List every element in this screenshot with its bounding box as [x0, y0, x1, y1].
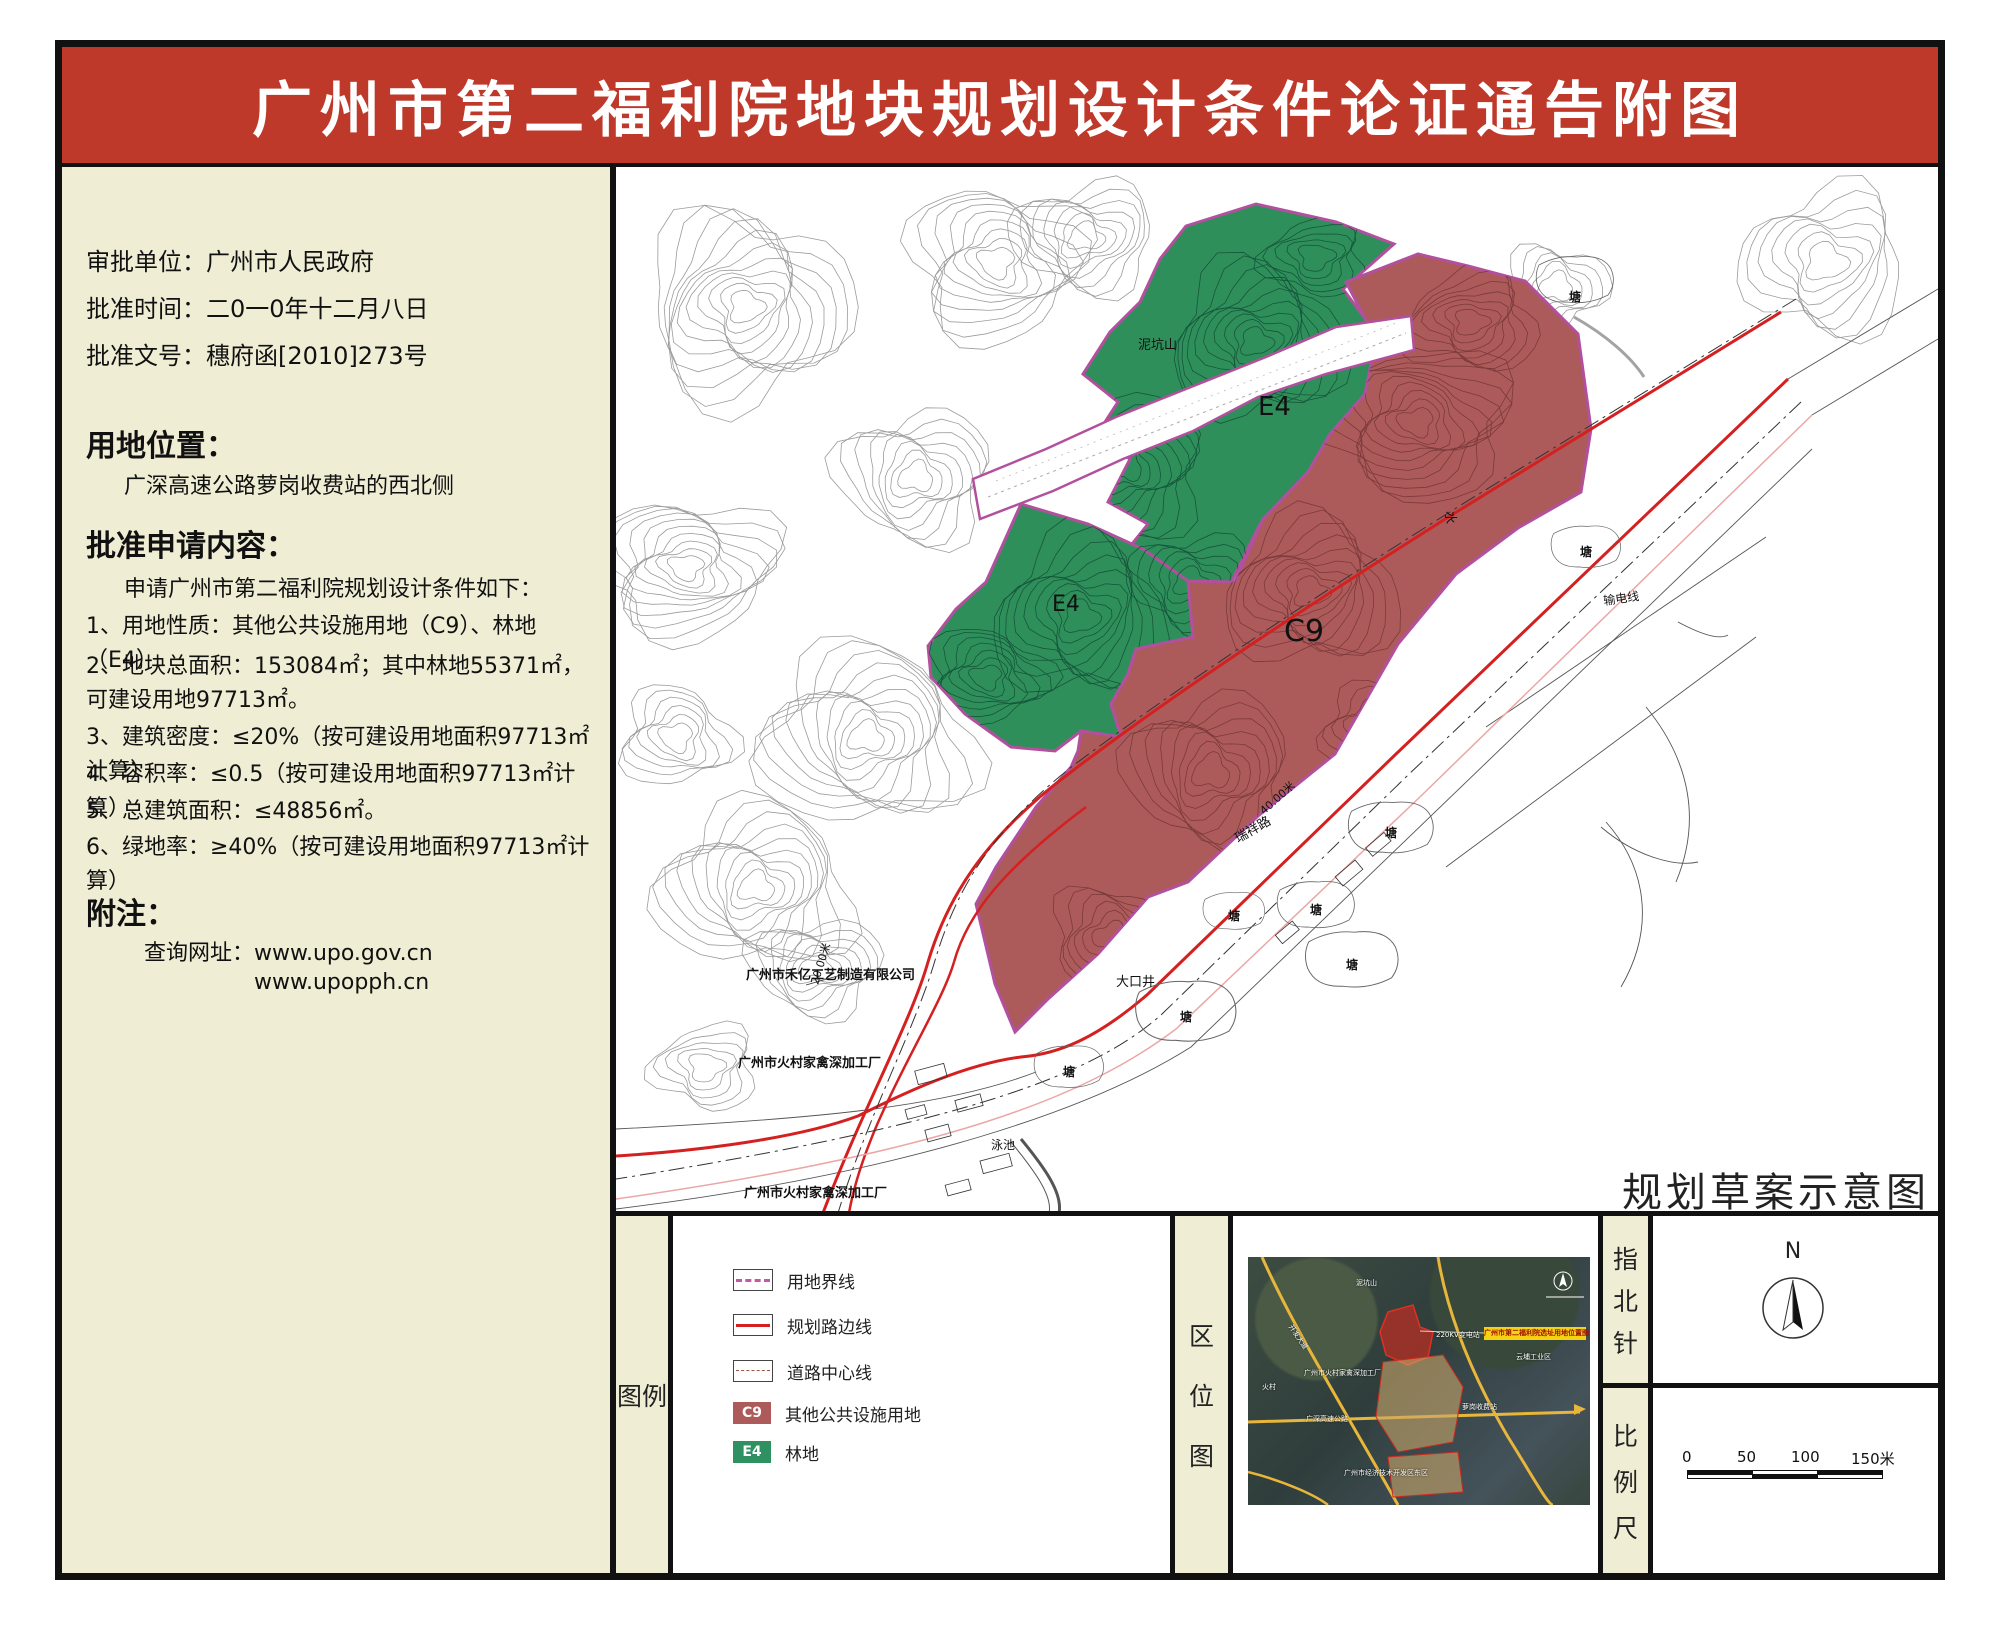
legend-title-text: 图例	[617, 1377, 667, 1413]
e4-swatch: E4	[733, 1441, 771, 1463]
contour-line	[827, 695, 915, 781]
inset-compass-needle	[1559, 1273, 1567, 1287]
scale-bar-cell: 0 50 100 150米	[1653, 1388, 1938, 1573]
legend-title: 图例	[616, 1216, 668, 1573]
boundary-line-swatch	[733, 1269, 773, 1291]
scalebar-title-char: 尺	[1613, 1509, 1638, 1545]
compass-title-char: 指	[1613, 1240, 1638, 1276]
inset-label-highway: 广深高速公路	[1306, 1415, 1348, 1423]
map-label-c9: C9	[1284, 614, 1324, 649]
legend-label: 规划路边线	[787, 1313, 872, 1338]
scalebar-title-char: 例	[1613, 1463, 1638, 1499]
inset-label-factory: 广州市火村家禽深加工厂	[1304, 1369, 1381, 1377]
compass-needle-dark	[1793, 1280, 1803, 1330]
road-edge-swatch	[733, 1314, 773, 1336]
contour-line	[964, 239, 1021, 289]
condition-item: 5、总建筑面积：≤48856㎡。	[86, 795, 591, 829]
notes-heading: 附注：	[86, 898, 591, 932]
legend-item-centerline: 道路中心线	[733, 1359, 872, 1383]
contour-line	[760, 650, 950, 812]
map-label-hill: 泥坑山	[1138, 338, 1177, 353]
inset-label-hill: 泥坑山	[1356, 1279, 1377, 1287]
location-map-title-char: 图	[1189, 1437, 1214, 1473]
compass-title-char: 针	[1613, 1324, 1638, 1360]
map-label-well: 大口井	[1116, 975, 1155, 990]
location-body: 广深高速公路萝岗收费站的西北侧	[124, 470, 629, 504]
scalebar-title-char: 比	[1613, 1417, 1638, 1453]
contour-line	[616, 506, 785, 638]
north-arrow-cell: N	[1653, 1216, 1938, 1383]
contour-line	[918, 194, 1092, 338]
location-map-title-char: 区	[1189, 1317, 1214, 1353]
contour-line	[667, 556, 704, 582]
contour-line	[626, 526, 741, 600]
map-label-e4-lower: E4	[1052, 592, 1080, 617]
legend-label: 道路中心线	[787, 1359, 872, 1384]
map-label-pond: 塘	[1228, 908, 1240, 923]
satellite-overlay	[1248, 1257, 1590, 1505]
info-panel: 审批单位：广州市人民政府 批准时间：二0一0年十二月八日 批准文号：穗府函[20…	[62, 167, 616, 1573]
plan-sheet: 广州市第二福利院地块规划设计条件论证通告附图 审批单位：广州市人民政府 批准时间…	[0, 0, 2000, 1630]
inset-site-area	[1380, 1305, 1433, 1365]
scale-tick: 50	[1737, 1448, 1756, 1466]
contour-line	[731, 860, 785, 909]
contour-line	[935, 211, 1055, 302]
map-label-pond: 塘	[1580, 544, 1592, 559]
map-label-pool: 泳池	[991, 1138, 1015, 1152]
contour-line	[616, 505, 787, 650]
contour-line	[1538, 270, 1573, 301]
inset-buildable-area	[1376, 1355, 1463, 1452]
map-label-water: 水	[1442, 511, 1457, 524]
legend-item-boundary: 用地界线	[733, 1268, 855, 1292]
sheet-title: 广州市第二福利院地块规划设计条件论证通告附图	[252, 62, 1748, 149]
compass-title: 指 北 针	[1603, 1216, 1648, 1383]
contour-line	[721, 283, 778, 333]
legend-item-e4: E4 林地	[733, 1440, 819, 1464]
inset-site-chip: 广州市第二福利院选址用地位置图	[1484, 1327, 1586, 1340]
contour-line	[647, 790, 862, 959]
location-heading: 用地位置：	[86, 430, 591, 464]
contour-line	[686, 258, 793, 363]
inset-label-tollgate: 萝岗收费站	[1462, 1403, 1497, 1411]
map-label-factory-huocun: 广州市火村家禽深加工厂	[738, 1055, 881, 1071]
contour-line	[891, 450, 942, 497]
contour-line	[689, 1054, 727, 1082]
centerline-swatch	[733, 1360, 773, 1382]
contour-line	[656, 549, 712, 588]
legend-item-c9: C9 其他公共设施用地	[733, 1401, 921, 1425]
contour-line	[898, 459, 933, 492]
contour-line	[1007, 176, 1149, 301]
title-banner: 广州市第二福利院地块规划设计条件论证通告附图	[62, 47, 1938, 167]
inset-label-industrial: 云埔工业区	[1516, 1353, 1551, 1361]
scale-tick: 150米	[1851, 1448, 1895, 1469]
contour-line	[840, 710, 895, 759]
compass-needle-light	[1783, 1280, 1793, 1330]
approval-unit: 审批单位：广州市人民政府	[86, 245, 591, 279]
contour-line	[671, 230, 812, 373]
map-caption: 规划草案示意图	[1560, 1160, 1930, 1218]
north-arrow: N	[1653, 1216, 1938, 1383]
contour-line	[885, 441, 952, 508]
condition-item: 6、绿地率：≥40%（按可建设用地面积97713㎡计算）	[86, 831, 591, 899]
master-plan-map: E4 E4 C9 泥坑山 水 输电线 瑞祥路 40.00米 20.00米 大口井…	[616, 167, 1938, 1211]
legend-body: 用地界线 规划路边线 道路中心线 C9 其他公共设施用地 E4 林地	[673, 1216, 1170, 1573]
c9-swatch: C9	[733, 1402, 771, 1424]
location-map-title-char: 位	[1189, 1377, 1214, 1413]
inset-label-devzone: 广州市经济技术开发区东区	[1344, 1469, 1428, 1477]
contour-line	[731, 290, 768, 323]
contour-line	[622, 519, 756, 605]
contour-line	[855, 430, 981, 540]
contour-line	[1355, 712, 1395, 743]
map-label-factory-heyi: 广州市禾亿工艺制造有限公司	[746, 967, 915, 983]
inset-label-village: 火村	[1262, 1383, 1276, 1391]
approval-date: 批准时间：二0一0年十二月八日	[86, 292, 591, 326]
approval-docno: 批准文号：穗府函[2010]273号	[86, 339, 591, 373]
satellite-inset: 泥坑山 火村 220KV变电站 开发大道 广深高速公路 萝岗收费站 云埔工业区 …	[1248, 1257, 1590, 1505]
contour-line	[737, 869, 774, 901]
map-label-pond: 塘	[1063, 1064, 1075, 1079]
scalebar-title: 比 例 尺	[1603, 1388, 1648, 1573]
north-letter: N	[1785, 1239, 1801, 1264]
legend-item-road-edge: 规划路边线	[733, 1313, 872, 1337]
conditions-intro: 申请广州市第二福利院规划设计条件如下：	[124, 573, 594, 607]
compass-title-char: 北	[1613, 1282, 1638, 1318]
scale-tick: 100	[1791, 1448, 1820, 1466]
legend-label: 用地界线	[787, 1268, 855, 1293]
contour-line	[1062, 213, 1117, 258]
legend-label: 其他公共设施用地	[785, 1401, 921, 1426]
contour-line	[932, 198, 1084, 322]
contour-line	[977, 247, 1015, 280]
map-label-powerline: 输电线	[1602, 588, 1640, 608]
contour-line	[618, 685, 744, 784]
canal	[1021, 1139, 1060, 1211]
map-label-pond: 塘	[1346, 957, 1358, 972]
contour-line	[658, 723, 693, 754]
map-label-pond: 塘	[1180, 1009, 1192, 1024]
inset-label-substation: 220KV变电站	[1436, 1331, 1480, 1339]
contour-line	[1020, 189, 1144, 296]
scale-tick: 0	[1682, 1448, 1692, 1466]
contour-line	[637, 705, 706, 765]
map-label-factory-huocun: 广州市火村家禽深加工厂	[744, 1185, 887, 1201]
dam	[1574, 317, 1644, 377]
contour-line	[717, 846, 804, 930]
contour-line	[953, 229, 1027, 293]
conditions-heading: 批准申请内容：	[86, 530, 591, 564]
map-label-pond: 塘	[1310, 902, 1322, 917]
location-map-title: 区 位 图	[1175, 1216, 1228, 1573]
condition-item: 2、地块总面积：153084㎡；其中林地55371㎡，可建设用地97713㎡。	[86, 650, 591, 718]
location-map-cell: 泥坑山 火村 220KV变电站 开发大道 广深高速公路 萝岗收费站 云埔工业区 …	[1233, 1216, 1598, 1573]
map-label-pond: 塘	[1385, 825, 1397, 840]
legend-label: 林地	[785, 1440, 819, 1465]
map-label-e4-upper: E4	[1258, 392, 1291, 422]
map-label-pond: 塘	[1569, 289, 1581, 304]
contour-line	[664, 205, 847, 406]
contour-line	[825, 408, 989, 553]
